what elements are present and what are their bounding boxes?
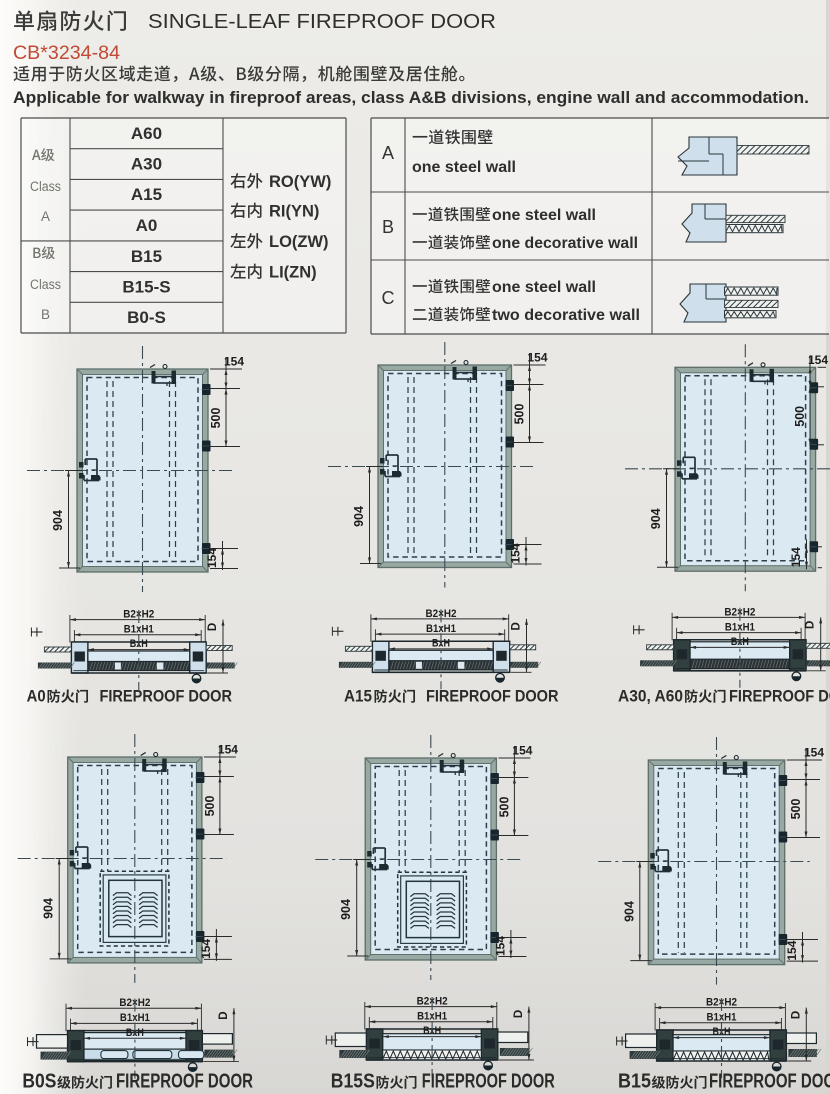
svg-text:904: 904 [352,506,366,527]
svg-text:FIREPROOF DOOR: FIREPROOF DOOR [116,1071,253,1093]
svg-text:154: 154 [808,353,828,367]
svg-text:D: D [790,1011,802,1019]
svg-text:one steel wall: one steel wall [492,207,596,224]
svg-text:B: B [41,307,50,322]
svg-text:D: D [511,622,523,630]
svg-text:904: 904 [42,898,56,919]
svg-text:154: 154 [224,355,244,369]
svg-text:CB*3234-84: CB*3234-84 [13,42,120,64]
svg-text:Applicable for walkway in fire: Applicable for walkway in fireproof area… [13,89,809,107]
svg-text:500: 500 [513,404,527,425]
svg-text:500: 500 [789,799,803,820]
svg-text:154: 154 [199,939,213,959]
svg-text:FIREPROOF DOOR: FIREPROOF DOOR [729,687,830,706]
svg-text:LI(ZN): LI(ZN) [269,264,317,282]
svg-text:500: 500 [203,796,217,817]
svg-text:154: 154 [205,548,219,568]
svg-text:A30: A30 [131,155,162,174]
svg-text:one steel wall: one steel wall [412,159,516,176]
svg-text:154: 154 [509,543,523,563]
svg-text:154: 154 [785,940,799,960]
svg-text:A15: A15 [344,687,372,706]
svg-text:154: 154 [804,746,824,760]
svg-text:904: 904 [339,899,353,920]
svg-text:B0S: B0S [22,1071,56,1093]
svg-text:B15: B15 [618,1071,651,1093]
svg-text:B0-S: B0-S [127,308,166,327]
svg-text:D: D [513,1010,525,1018]
svg-text:904: 904 [649,508,663,529]
svg-text:A0: A0 [136,216,158,235]
svg-text:B: B [382,217,394,237]
svg-text:A60: A60 [131,124,162,143]
svg-text:500: 500 [793,406,807,427]
svg-text:two decorative wall: two decorative wall [492,307,640,324]
svg-text:A0: A0 [27,687,46,706]
svg-text:FIREPROOF DOOR: FIREPROOF DOOR [426,687,559,706]
svg-text:one decorative wall: one decorative wall [492,235,638,252]
svg-text:A30, A60: A30, A60 [618,687,683,706]
svg-text:154: 154 [218,743,238,757]
svg-text:904: 904 [622,901,636,922]
svg-text:FIREPROOF DOOR: FIREPROOF DOOR [100,687,233,706]
svg-text:A: A [382,143,394,163]
svg-text:B15-S: B15-S [122,278,170,297]
svg-text:RO(YW): RO(YW) [269,173,331,191]
svg-text:D: D [805,621,817,629]
svg-text:SINGLE-LEAF FIREPROOF DOOR: SINGLE-LEAF FIREPROOF DOOR [148,10,496,33]
svg-text:500: 500 [497,797,511,818]
svg-text:B15S: B15S [331,1071,375,1093]
svg-text:154: 154 [528,351,548,365]
svg-text:FIREPROOF DOOR: FIREPROOF DOOR [709,1071,830,1093]
svg-text:154: 154 [493,936,507,956]
svg-text:Class: Class [30,179,61,194]
svg-text:D: D [218,1011,230,1019]
svg-text:FIREPROOF DOOR: FIREPROOF DOOR [422,1071,555,1093]
svg-text:154: 154 [789,547,803,567]
svg-text:A15: A15 [131,185,162,204]
svg-text:A: A [41,209,50,224]
svg-text:C: C [382,288,395,308]
svg-text:one steel wall: one steel wall [492,279,596,296]
svg-text:Class: Class [30,277,61,292]
svg-text:LO(ZW): LO(ZW) [269,233,329,251]
svg-text:904: 904 [51,510,65,531]
svg-text:154: 154 [512,744,532,758]
svg-text:B15: B15 [131,247,162,266]
svg-text:500: 500 [209,408,223,429]
svg-text:RI(YN): RI(YN) [269,203,319,221]
svg-text:D: D [207,623,219,631]
